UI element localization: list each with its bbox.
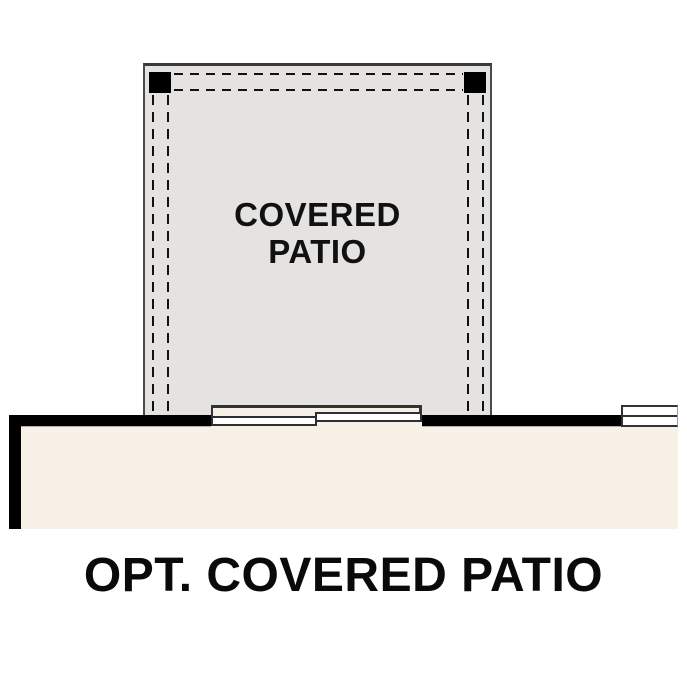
sliding-door-panel-left <box>211 416 317 426</box>
patio-room-label: COVERED PATIO <box>143 196 492 270</box>
patio-column-marker-left <box>149 72 171 93</box>
sliding-door-panel-right <box>315 412 422 422</box>
patio-room-label-line2: PATIO <box>143 233 492 270</box>
sliding-door-header-line <box>211 405 422 408</box>
window-symbol-right <box>621 405 678 427</box>
floorplan-canvas: COVERED PATIO OPT. COVERED PATIO <box>0 0 687 687</box>
exterior-wall-left-return <box>9 415 21 529</box>
plan-caption: OPT. COVERED PATIO <box>0 548 687 604</box>
house-interior-floor <box>21 426 678 529</box>
roof-overhang-dashed-line-top-inner <box>174 89 463 91</box>
window-glass-line <box>623 415 677 417</box>
patio-room-label-line1: COVERED <box>143 196 492 233</box>
roof-overhang-dashed-line-top-outer <box>174 73 463 75</box>
patio-column-marker-right <box>464 72 486 93</box>
